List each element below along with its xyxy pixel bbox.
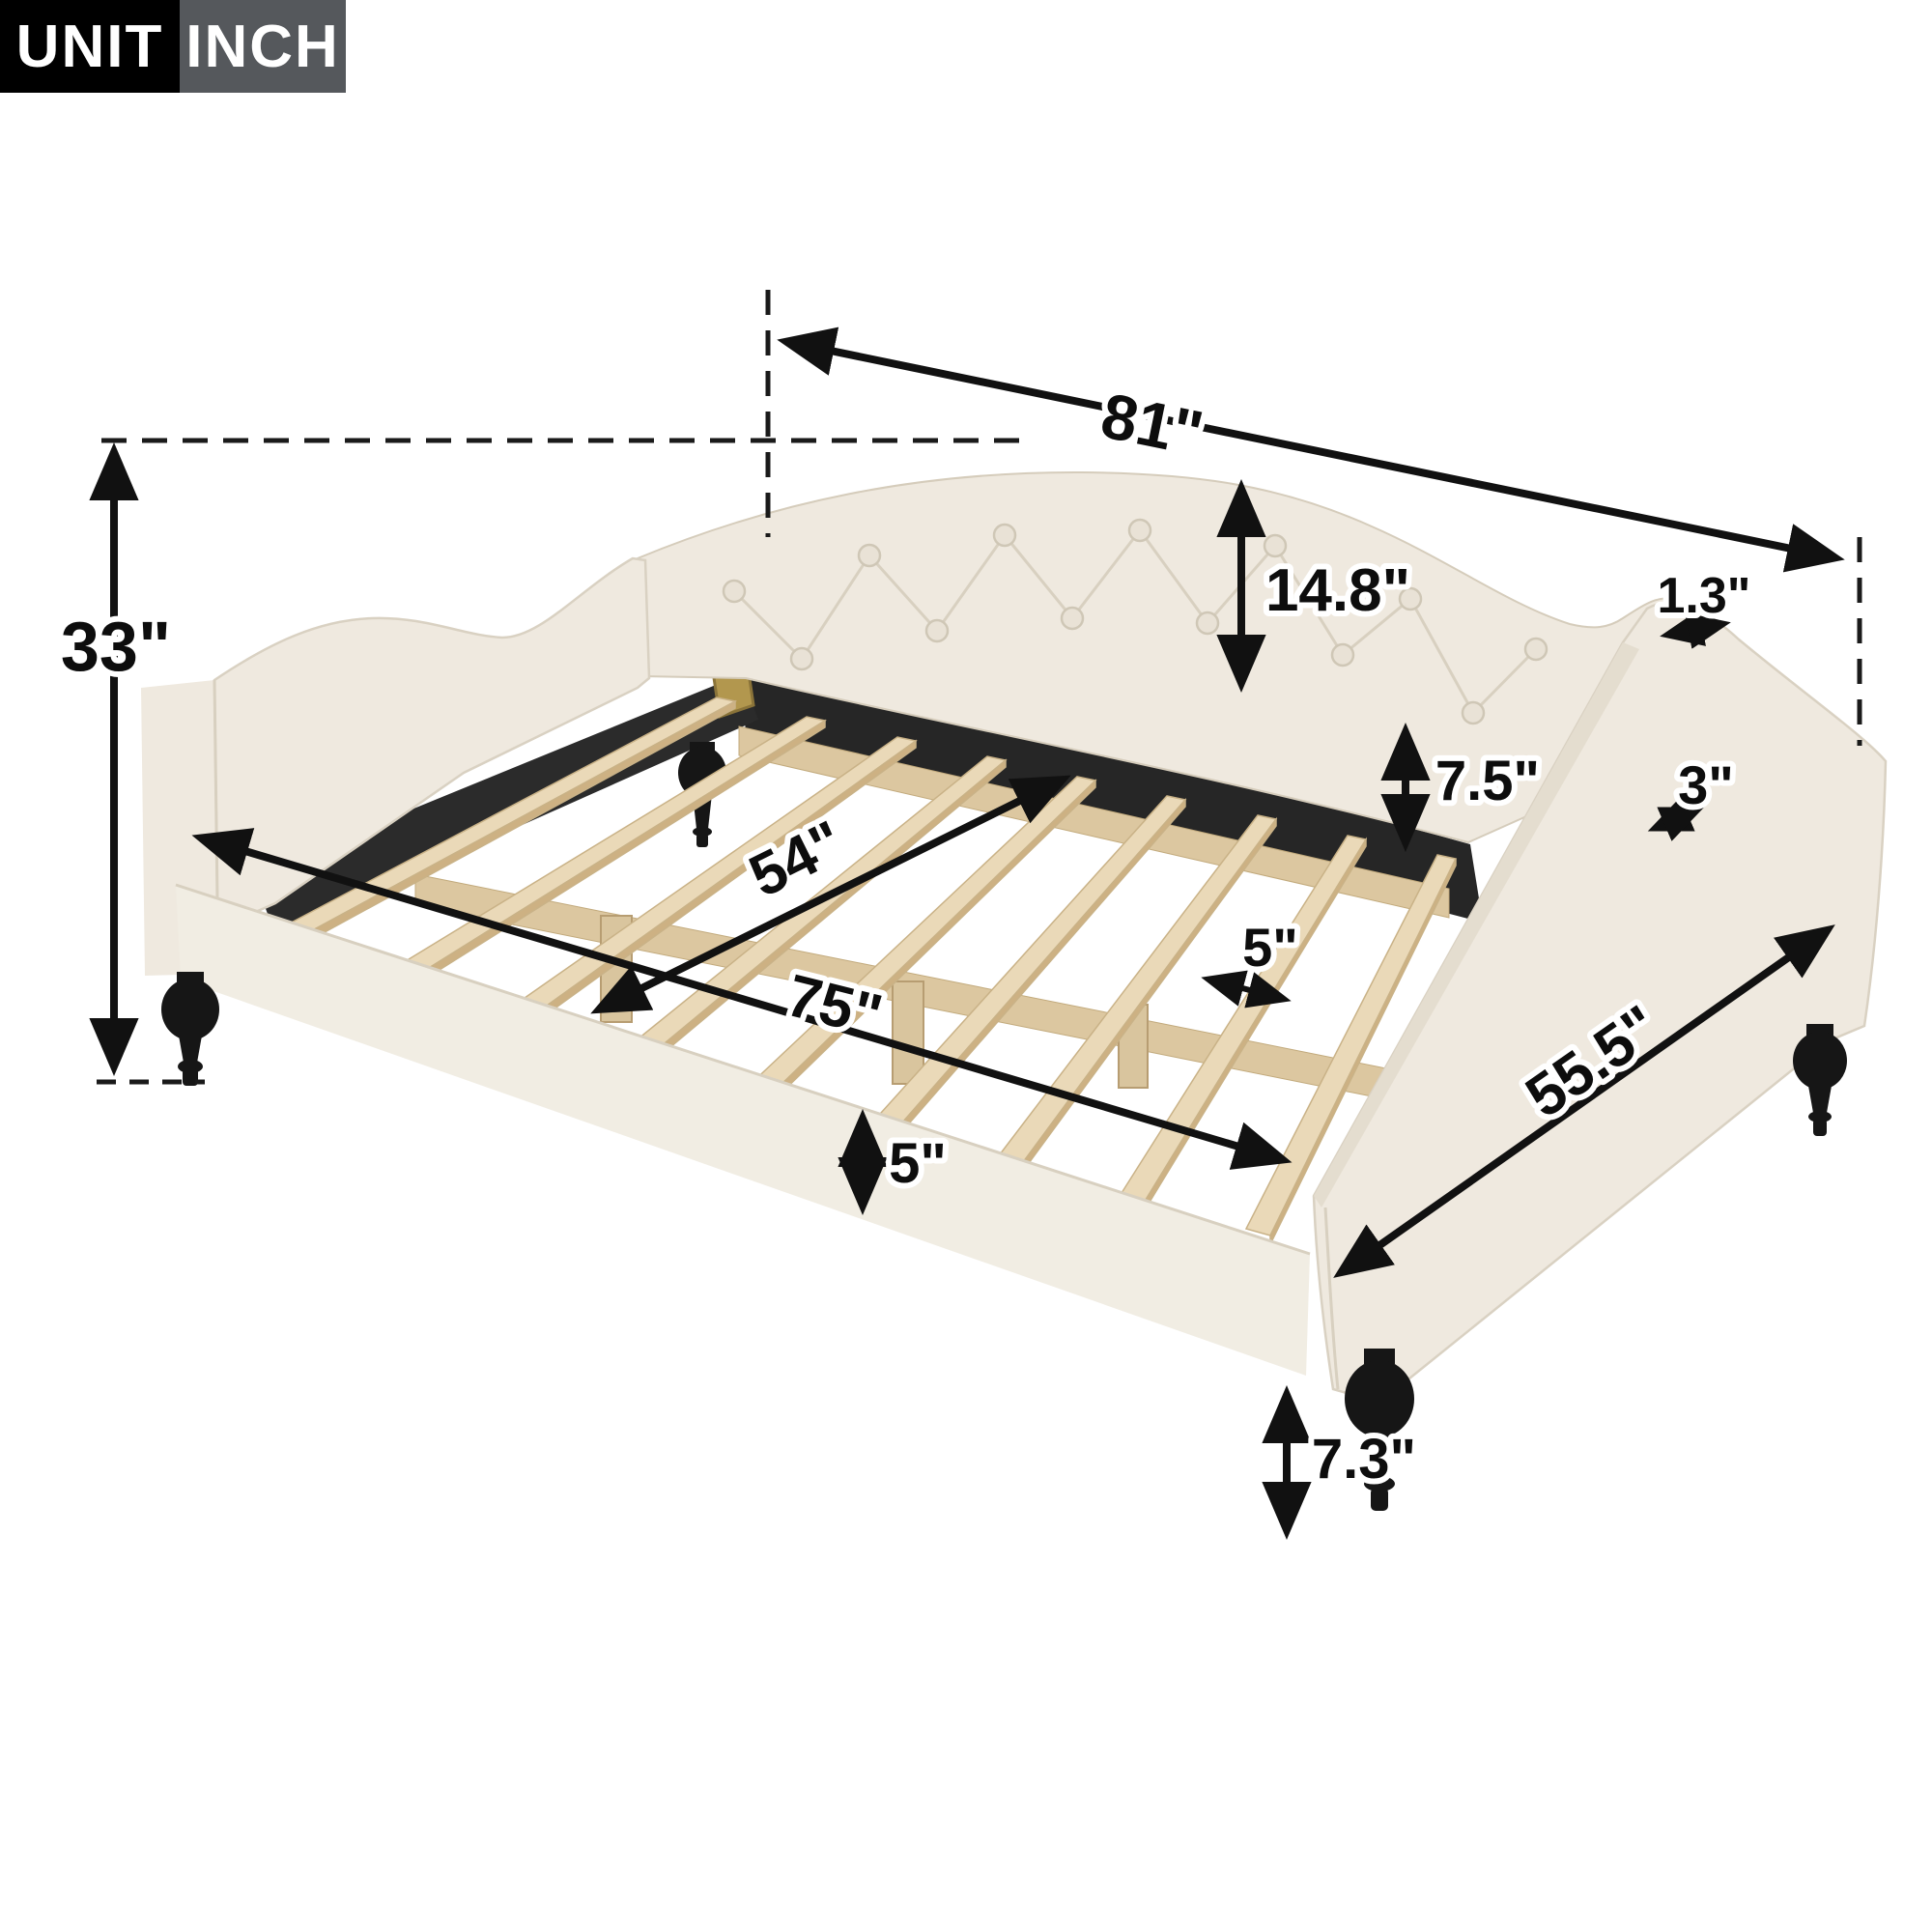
dim-arm-top-thickness-label: 3" [1678,754,1734,815]
dim-total-height-label: 33" [61,609,171,686]
product-dimension-diagram: 81" 33" 14.8" 1.3" 7.5" 3" 54" 75" 5" 5"… [0,0,1932,1932]
daybed-diagram: 81" 33" 14.8" 1.3" 7.5" 3" 54" 75" 5" 5"… [0,0,1932,1932]
leg-foot-back [1793,1024,1847,1136]
daybed [141,472,1886,1511]
dim-top-thickness-label: 1.3" [1658,568,1751,624]
dim-leg-height-label: 7.3" [1312,1428,1416,1491]
tufting-button [1332,644,1353,666]
support-post [893,981,923,1084]
tufting-button [791,648,812,669]
tufting-button [1197,612,1218,634]
tufting-button [859,545,880,566]
unit-badge-label: UNIT [0,0,180,93]
dim-back-rail-height-label: 7.5" [1435,750,1540,812]
unit-badge-value: INCH [180,0,346,93]
tufting-button [724,581,745,602]
tufting-button [1129,520,1151,541]
leg-head-front [161,972,219,1086]
dim-total-length-label: 81" [1095,379,1208,469]
tufting-button [1463,702,1484,724]
dim-front-rail-height-label: 5" [889,1132,947,1195]
dim-slat-spacing-label: 5" [1242,917,1298,978]
unit-badge: UNIT INCH [0,0,346,93]
tufting-button [1525,639,1547,660]
tufting-button [926,620,948,641]
dim-backrest-height-label: 14.8" [1265,557,1410,624]
tufting-button [1062,608,1083,629]
tufting-button [994,525,1015,546]
tufting-button [1264,535,1286,556]
